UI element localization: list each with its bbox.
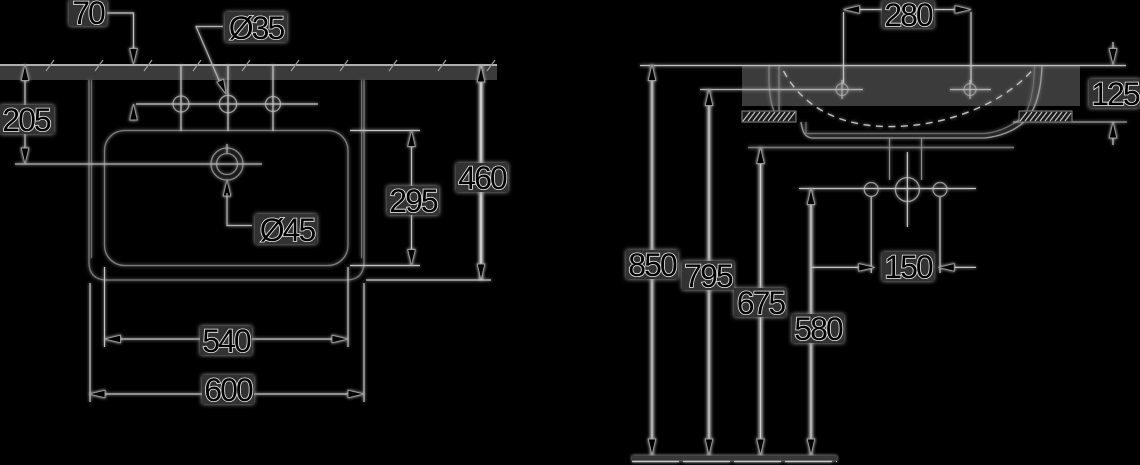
svg-text:295: 295 (389, 183, 438, 219)
svg-text:580: 580 (794, 311, 843, 347)
svg-text:460: 460 (458, 160, 507, 196)
svg-text:70: 70 (72, 0, 105, 31)
svg-text:150: 150 (884, 249, 933, 285)
svg-text:795: 795 (684, 258, 733, 294)
svg-text:675: 675 (737, 285, 786, 321)
svg-text:540: 540 (202, 323, 251, 359)
svg-text:125: 125 (1091, 76, 1140, 112)
svg-text:Ø35: Ø35 (229, 10, 285, 46)
svg-text:Ø45: Ø45 (260, 212, 316, 248)
svg-text:280: 280 (884, 0, 933, 33)
svg-text:850: 850 (628, 247, 677, 283)
svg-text:600: 600 (204, 372, 253, 408)
svg-text:205: 205 (2, 102, 51, 138)
